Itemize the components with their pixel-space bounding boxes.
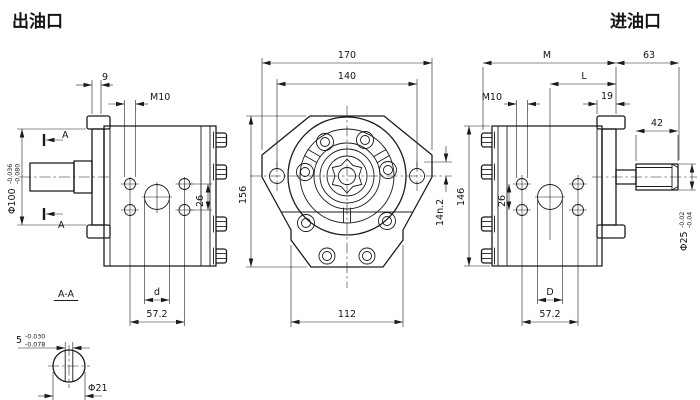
- dim-flat-width: 5: [16, 335, 22, 346]
- dim-flat-tol-lo: -0.078: [25, 342, 45, 349]
- outlet-title: 出油口: [12, 11, 63, 32]
- svg-text:-0.04: -0.04: [687, 212, 694, 228]
- dim-end-length: 63: [643, 50, 655, 61]
- dim-thread-inlet: M10: [482, 92, 502, 103]
- svg-text:-0.02: -0.02: [679, 212, 686, 228]
- dim-holes-h-outlet: 57.2: [146, 309, 167, 320]
- outlet-side-view: 9 M10 Φ100 -0.036 -0.080 26 d 57.2 A A: [7, 72, 227, 326]
- svg-text:156: 156: [238, 186, 249, 204]
- dim-hole-v-inlet: 26: [497, 195, 508, 207]
- dim-thread-outlet: M10: [150, 92, 170, 103]
- front-view: 170 140 156 112 14n.2: [238, 50, 452, 327]
- section-mark-a-bottom: A: [58, 220, 65, 231]
- inlet-title: 进油口: [610, 11, 661, 32]
- dim-thread-length: 42: [651, 118, 663, 129]
- dim-port-inlet: D: [546, 287, 553, 298]
- dim-l: L: [581, 71, 587, 82]
- dim-tab: 19: [601, 91, 613, 102]
- section-aa-label: A-A: [58, 289, 75, 300]
- svg-text:14n.2: 14n.2: [435, 199, 446, 226]
- dim-section-diameter: Φ21: [88, 383, 108, 394]
- dim-holes-h-inlet: 57.2: [539, 309, 560, 320]
- section-aa-view: A-A 5 -0.030 -0.078 Φ21: [16, 289, 108, 400]
- svg-text:26: 26: [497, 195, 508, 207]
- inlet-flange-tab-top: [597, 116, 625, 129]
- outlet-flange-tab-top: [87, 116, 110, 129]
- inlet-flange-tab-bottom: [597, 225, 625, 238]
- dim-height-inlet: 146: [456, 188, 467, 206]
- svg-text:Φ25: Φ25: [679, 231, 690, 251]
- dim-port-outlet: d: [154, 287, 160, 298]
- svg-text:Φ100: Φ100: [7, 188, 18, 214]
- dim-overall-height: 156: [238, 186, 249, 204]
- svg-text:-0.080: -0.080: [15, 164, 22, 184]
- svg-text:146: 146: [456, 188, 467, 206]
- dim-ear-offset: 14n.2: [435, 199, 446, 226]
- dim-pilot-diameter: Φ100 -0.036 -0.080: [7, 164, 22, 214]
- dim-overall-width: 170: [338, 50, 356, 61]
- dim-m: M: [543, 50, 551, 61]
- inlet-side-view: M 63 L 19 M10 42 26 146 Φ25 -0.02 -0.04 …: [456, 50, 697, 326]
- svg-text:26: 26: [195, 195, 206, 207]
- dim-flange-thickness: 9: [102, 72, 108, 83]
- dim-bolt-span: 140: [338, 71, 356, 82]
- gear-pump-engineering-drawing: 出油口 进油口: [0, 0, 700, 400]
- inlet-body: [492, 126, 602, 266]
- dim-flat-tol-hi: -0.030: [25, 334, 45, 341]
- dim-shaft-diameter: Φ25 -0.02 -0.04: [679, 212, 694, 251]
- dim-body-width: 112: [338, 309, 356, 320]
- outlet-flange-tab-bottom: [87, 225, 110, 238]
- svg-text:-0.036: -0.036: [7, 164, 14, 184]
- dim-hole-v-outlet: 26: [195, 195, 206, 207]
- drawing-canvas: 出油口 进油口: [0, 0, 700, 400]
- section-mark-a-top: A: [62, 130, 69, 141]
